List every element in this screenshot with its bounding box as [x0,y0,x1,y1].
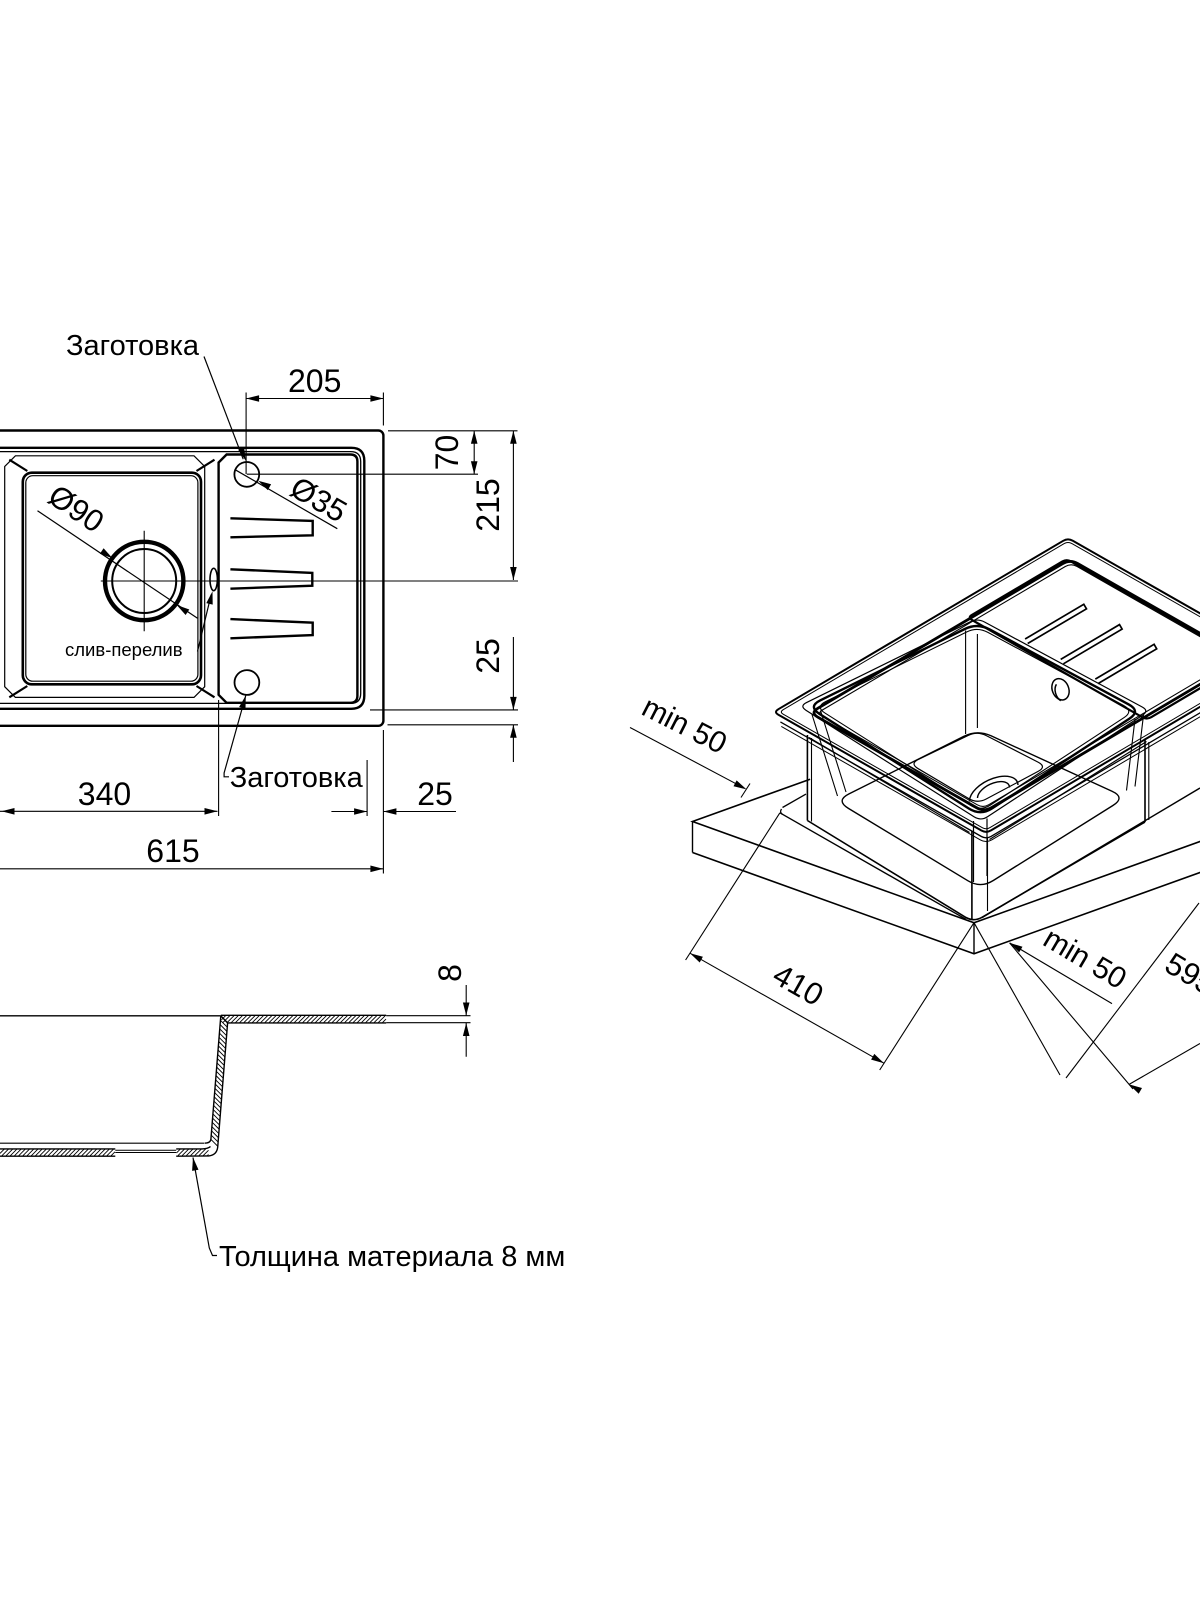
svg-text:340: 340 [78,776,131,812]
svg-text:205: 205 [288,363,341,399]
svg-text:Заготовка: Заготовка [66,330,200,362]
svg-text:слив-перелив: слив-перелив [65,639,183,660]
svg-text:70: 70 [429,435,465,471]
svg-text:25: 25 [470,638,506,674]
svg-text:215: 215 [470,478,506,531]
svg-text:615: 615 [146,833,199,869]
svg-text:25: 25 [417,776,453,812]
svg-text:Толщина материала 8 мм: Толщина материала 8 мм [219,1241,565,1273]
svg-text:Заготовка: Заготовка [230,762,364,794]
svg-text:8: 8 [432,964,468,982]
